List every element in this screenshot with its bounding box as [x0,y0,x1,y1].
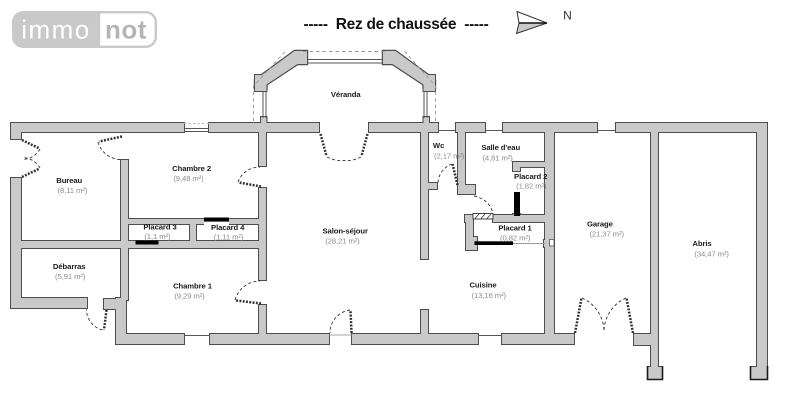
svg-text:Salon-séjour: Salon-séjour [323,227,368,236]
svg-text:(8,11 m²): (8,11 m²) [58,186,88,195]
svg-text:(5,91 m²): (5,91 m²) [55,272,86,281]
svg-text:(1,11 m²): (1,11 m²) [214,233,244,242]
svg-text:(28,21 m²): (28,21 m²) [325,237,360,246]
svg-text:Placard 3: Placard 3 [143,223,176,232]
svg-text:(9,29 m²): (9,29 m²) [174,291,205,300]
svg-text:Abris: Abris [692,239,711,248]
svg-text:not: not [105,15,147,45]
svg-text:Chambre 2: Chambre 2 [172,164,211,173]
svg-text:(13,16 m²): (13,16 m²) [472,291,507,300]
svg-text:immo: immo [21,15,91,45]
svg-text:Chambre 1: Chambre 1 [173,282,213,291]
svg-text:(4,81 m²): (4,81 m²) [482,153,513,162]
svg-text:Placard 1: Placard 1 [498,224,532,233]
svg-text:Placard 2: Placard 2 [514,172,547,181]
svg-text:----- Rez de chaussée -----: ----- Rez de chaussée ----- [303,16,488,33]
svg-text:Débarras: Débarras [53,262,86,271]
svg-text:(34,47 m²): (34,47 m²) [694,249,729,258]
svg-text:Placard 4: Placard 4 [211,223,245,232]
svg-text:(0,82 m²): (0,82 m²) [500,233,531,242]
svg-text:Véranda: Véranda [331,90,361,99]
svg-text:(9,48 m²): (9,48 m²) [173,174,204,183]
svg-text:(21,37 m²): (21,37 m²) [589,230,624,239]
svg-text:Cuisine: Cuisine [469,281,497,290]
svg-text:Garage: Garage [587,220,614,229]
svg-text:Bureau: Bureau [56,176,82,185]
svg-text:(1,82 m²): (1,82 m²) [516,181,547,190]
svg-text:(1,1 m²): (1,1 m²) [144,232,171,241]
svg-text:Salle d'eau: Salle d'eau [481,143,520,152]
svg-text:N: N [563,9,572,23]
svg-text:(2,17 m²): (2,17 m²) [434,151,465,160]
svg-text:Wc: Wc [433,141,445,150]
